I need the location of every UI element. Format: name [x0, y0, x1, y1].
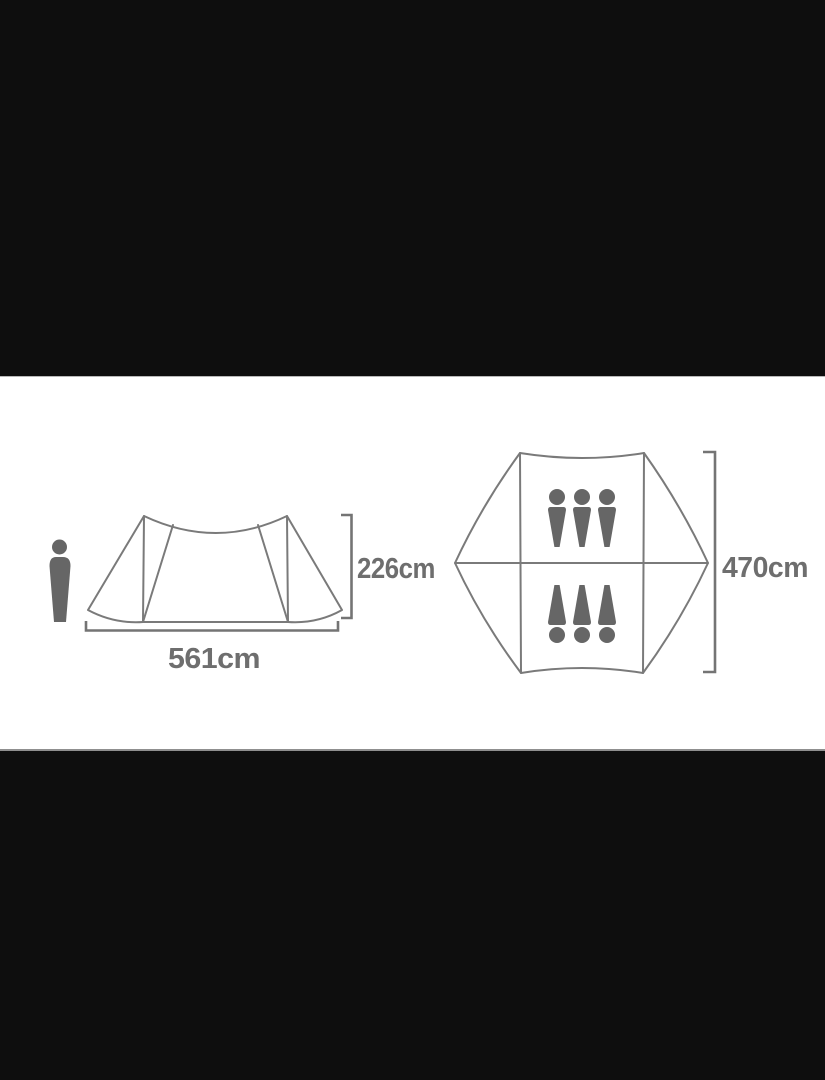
tent-floor-plan — [455, 453, 708, 673]
length-dimension-label: 470cm — [722, 552, 808, 584]
length-dimension: 470cm — [703, 452, 808, 672]
occupant-icons-bottom-row — [548, 585, 616, 643]
width-dimension-label: 561cm — [168, 643, 260, 675]
person-icon — [598, 585, 616, 643]
tent-side-view — [88, 516, 342, 622]
height-dimension-label: 226cm — [357, 553, 435, 585]
height-dimension: 226cm — [341, 515, 435, 618]
screenshot-stage: 226cm 561cm — [0, 0, 825, 1080]
person-icon — [548, 585, 566, 643]
bottom-letterbox — [0, 751, 825, 1080]
tent-dimensions-diagram: 226cm 561cm — [0, 377, 825, 749]
diagram-canvas: 226cm 561cm — [0, 376, 825, 751]
occupant-icons-top-row — [548, 489, 616, 547]
tent-side-pole-left — [143, 516, 144, 622]
tent-side-outline — [88, 516, 342, 622]
tent-side-seam-right — [258, 525, 288, 622]
human-figure-icon — [50, 540, 71, 623]
tent-side-pole-right — [287, 516, 288, 622]
height-dimension-bracket — [341, 515, 352, 618]
top-letterbox — [0, 0, 825, 376]
person-icon — [548, 489, 566, 547]
width-dimension: 561cm — [86, 621, 338, 675]
person-icon — [573, 489, 591, 547]
tent-side-seam-left — [143, 525, 173, 622]
person-icon — [598, 489, 616, 547]
person-icon — [573, 585, 591, 643]
